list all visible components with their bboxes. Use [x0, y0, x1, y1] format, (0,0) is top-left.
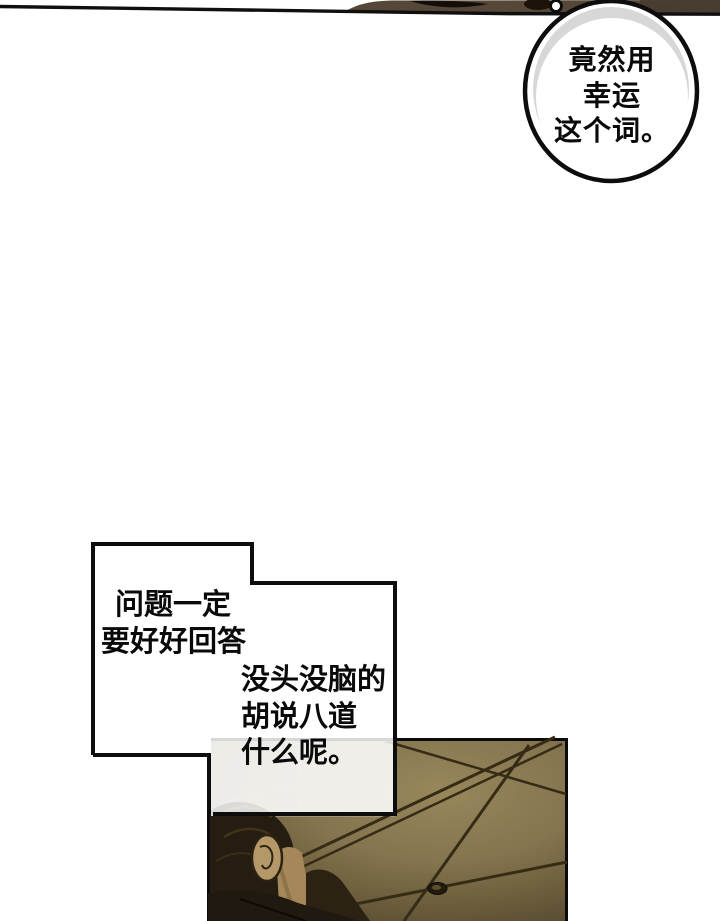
character-ear	[252, 835, 282, 881]
caption-line: 要好好回答	[101, 623, 246, 660]
speech-bubble-text: 竟然用 幸运 这个词。	[524, 42, 700, 149]
bubble-line: 竟然用	[524, 42, 700, 78]
comic-page: 竟然用 幸运 这个词。	[0, 0, 720, 921]
caption-text-secondary: 没头没脑的 胡说八道 什么呢。	[241, 661, 386, 771]
caption-box-border-step	[93, 755, 209, 814]
caption-line: 问题一定	[101, 586, 246, 623]
caption-text-primary: 问题一定 要好好回答	[101, 586, 246, 659]
bubble-line: 幸运	[524, 78, 700, 114]
bubble-line: 这个词。	[524, 113, 700, 149]
caption-line: 胡说八道	[241, 698, 386, 735]
bubble-bump-circle	[551, 1, 562, 12]
caption-line: 没头没脑的	[241, 661, 386, 698]
caption-line: 什么呢。	[241, 734, 386, 771]
ceiling-knob	[428, 883, 447, 895]
